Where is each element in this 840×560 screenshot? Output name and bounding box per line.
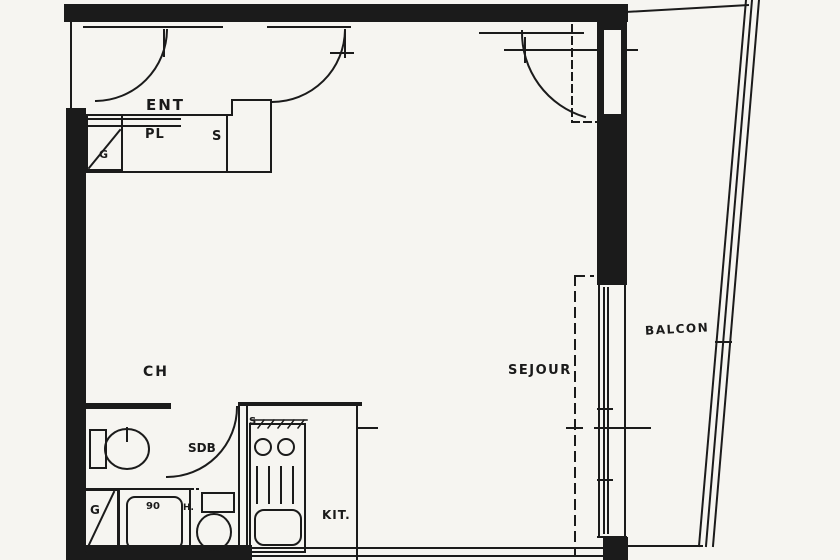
label-water-heater: H. <box>183 503 194 513</box>
label-entry: ENT <box>146 96 185 114</box>
balcony-door-leaf <box>603 29 622 115</box>
label-kitchen: KIT. <box>322 508 351 522</box>
label-bathroom: SDB <box>188 441 216 455</box>
label-living-room: SEJOUR <box>508 363 572 378</box>
label-closet-cupboard: S <box>212 129 221 144</box>
label-closet: PL <box>145 127 165 142</box>
label-duct-lower: G <box>90 503 100 517</box>
floor-plan-drawing: ENT PL S G CH SDB 90 H. G KIT. S SEJOUR … <box>0 0 840 560</box>
floor-plan-page: ENT PL S G CH SDB 90 H. G KIT. S SEJOUR … <box>0 0 840 560</box>
top-wall <box>64 4 628 22</box>
label-kitchen-mark: S <box>249 416 256 427</box>
label-shower: 90 <box>146 501 160 512</box>
paper-background <box>0 0 840 560</box>
label-bedroom: CH <box>143 364 169 380</box>
label-duct-upper: G <box>99 148 108 161</box>
